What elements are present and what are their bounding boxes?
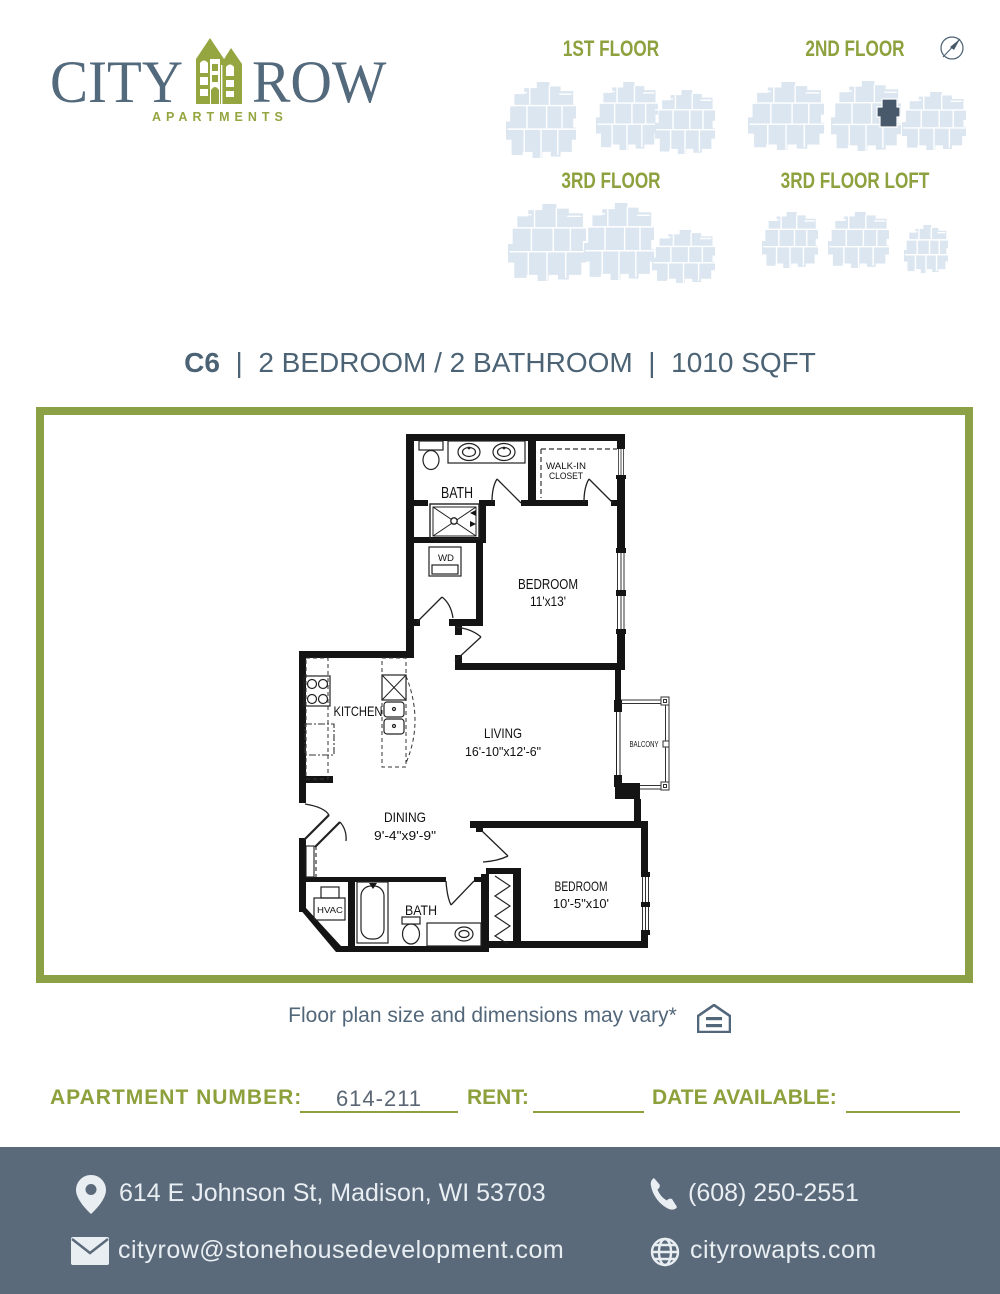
svg-text:BATH: BATH bbox=[405, 902, 437, 918]
svg-text:BEDROOM: BEDROOM bbox=[555, 878, 608, 894]
svg-text:WD: WD bbox=[438, 553, 455, 563]
svg-text:BATH: BATH bbox=[441, 485, 473, 502]
svg-text:16'-10"x12'-6": 16'-10"x12'-6" bbox=[465, 744, 541, 759]
svg-text:BEDROOM: BEDROOM bbox=[518, 576, 578, 593]
svg-text:DINING: DINING bbox=[384, 809, 426, 825]
svg-text:LIVING: LIVING bbox=[484, 725, 522, 741]
svg-text:KITCHEN: KITCHEN bbox=[334, 703, 383, 719]
svg-text:HVAC: HVAC bbox=[317, 906, 343, 915]
svg-text:BALCONY: BALCONY bbox=[630, 740, 660, 749]
svg-text:9'-4"x9'-9": 9'-4"x9'-9" bbox=[374, 828, 436, 843]
svg-text:10'-5"x10': 10'-5"x10' bbox=[553, 896, 609, 911]
svg-text:11'x13': 11'x13' bbox=[530, 593, 566, 609]
svg-text:CLOSET: CLOSET bbox=[549, 471, 583, 481]
svg-text:WALK-IN: WALK-IN bbox=[546, 461, 586, 471]
